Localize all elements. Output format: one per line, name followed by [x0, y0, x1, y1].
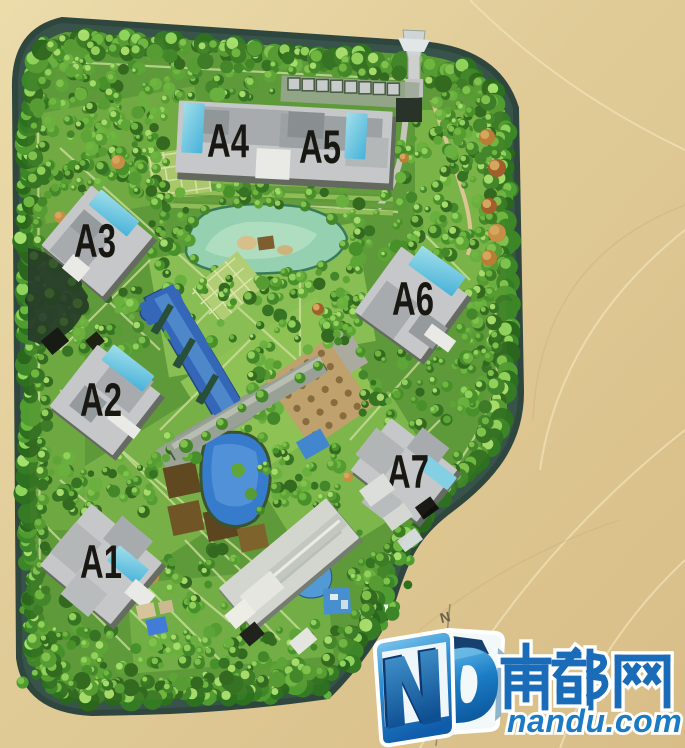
svg-text:nandu.com: nandu.com — [507, 703, 682, 739]
